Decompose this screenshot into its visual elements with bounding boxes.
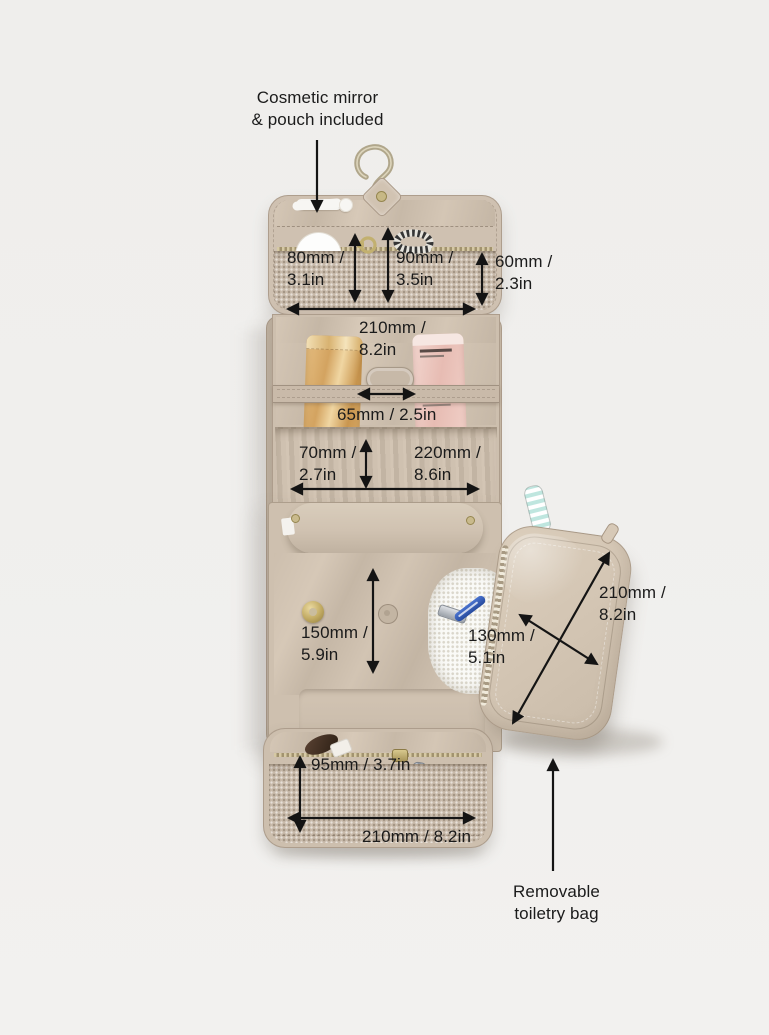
padded-roll — [287, 503, 483, 553]
mirror-sleeve-strip — [296, 199, 342, 210]
bottom-flap-band — [270, 732, 486, 752]
bag-shadow — [236, 330, 270, 750]
dim-label-210mm-bottom: 210mm / 8.2in — [362, 826, 471, 848]
dim-label-210mm-top: 210mm / 8.2in — [359, 317, 426, 361]
dim-label-95mm: 95mm / 3.7in — [311, 754, 410, 776]
rivet-left — [291, 514, 300, 523]
magnetic-snap-middle — [378, 604, 398, 624]
cotton-pad — [339, 199, 352, 212]
dim-label-210mm-pouch: 210mm / 8.2in — [599, 582, 666, 626]
dim-label-90mm: 90mm / 3.5in — [396, 247, 453, 291]
rivet-right — [466, 516, 475, 525]
dim-label-220mm: 220mm / 8.6in — [414, 442, 481, 486]
toiletry-bag-dimension-diagram: Cosmetic mirror & pouch included 80mm / … — [0, 0, 769, 1035]
dim-label-80mm: 80mm / 3.1in — [287, 247, 344, 291]
dim-label-150mm: 150mm / 5.9in — [301, 622, 368, 666]
dim-label-70mm: 70mm / 2.7in — [299, 442, 356, 486]
elastic-strap — [273, 385, 499, 403]
dim-label-130mm: 130mm / 5.1in — [468, 625, 535, 669]
dim-label-65mm: 65mm / 2.5in — [337, 404, 436, 426]
hanger-grommet — [376, 191, 387, 202]
note-cosmetic-mirror: Cosmetic mirror & pouch included — [230, 87, 405, 131]
dim-label-60mm: 60mm / 2.3in — [495, 251, 552, 295]
magnetic-snap-left — [302, 601, 324, 623]
note-removable-bag: Removable toiletry bag — [494, 881, 619, 925]
